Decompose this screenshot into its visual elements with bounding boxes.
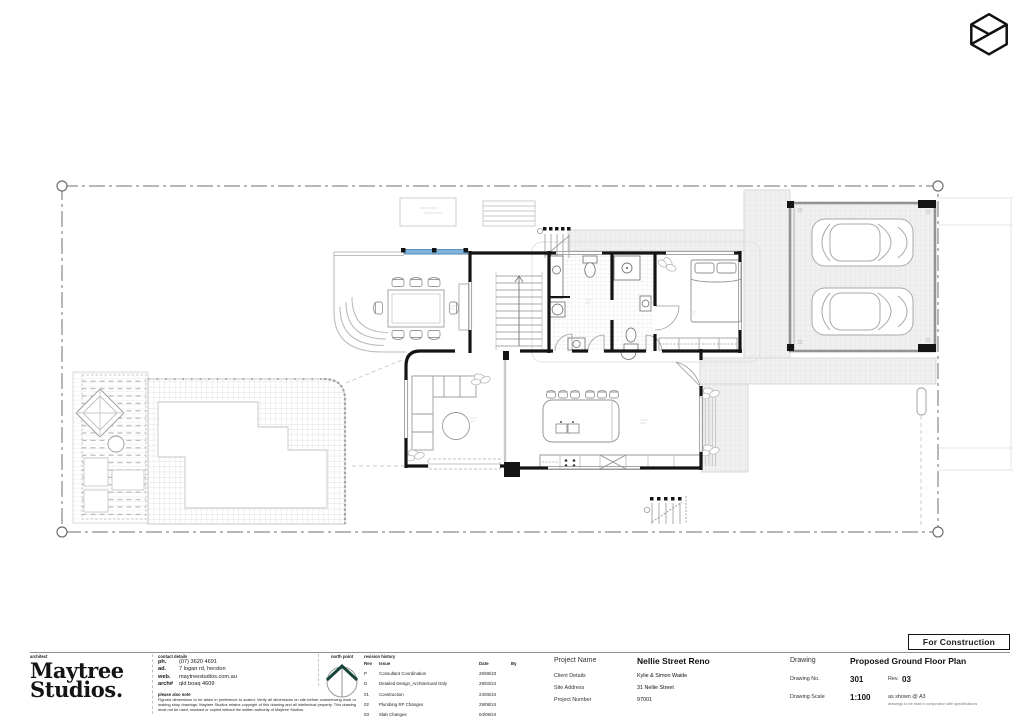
floor-plan bbox=[0, 0, 1024, 725]
drawing-title: Proposed Ground Floor Plan bbox=[850, 656, 966, 666]
bed bbox=[691, 260, 741, 322]
rev-by bbox=[511, 702, 525, 712]
by-header: By bbox=[511, 661, 525, 671]
coffee-table bbox=[443, 413, 470, 440]
wardrobe bbox=[659, 338, 737, 350]
sofa bbox=[412, 376, 476, 450]
car-icon bbox=[812, 219, 913, 266]
hall-basin bbox=[621, 352, 636, 360]
window-seat bbox=[428, 459, 500, 469]
window-seat-deck bbox=[459, 284, 469, 330]
rev-id: 02 bbox=[364, 702, 379, 712]
drawing-no-label: Drawing No. bbox=[790, 676, 820, 682]
drawing-label: Drawing bbox=[790, 657, 816, 664]
project-name: Nellie Street Reno bbox=[637, 656, 710, 666]
scale-fine-print: drawings to be read in conjunction with … bbox=[888, 702, 977, 706]
rev-id: D bbox=[364, 681, 379, 691]
project-name-label: Project Name bbox=[554, 657, 596, 664]
rev-date: 24/05/24 bbox=[479, 692, 511, 702]
rev-label: Rev. bbox=[888, 676, 899, 682]
neighbour-lines bbox=[938, 198, 1013, 470]
island-stools bbox=[547, 390, 619, 398]
rev-by bbox=[511, 681, 525, 691]
scale-note: as shown @ A3 bbox=[888, 694, 926, 700]
project-number-value: 97001 bbox=[637, 697, 652, 703]
rev-header: Rev bbox=[364, 661, 379, 671]
rev-by bbox=[511, 671, 525, 681]
issue-header: Issue bbox=[379, 661, 479, 671]
rev-value: 03 bbox=[902, 675, 911, 684]
tree-icon bbox=[108, 436, 124, 452]
revision-heading: revision history bbox=[364, 654, 525, 659]
car-icon bbox=[812, 288, 913, 335]
louvre-steps bbox=[483, 201, 535, 226]
rev-by bbox=[511, 712, 525, 722]
rev-issue: Slab Changes bbox=[379, 712, 479, 722]
for-construction-stamp: For Construction bbox=[908, 634, 1010, 650]
drawing-scale-label: Drawing Scale bbox=[790, 694, 825, 700]
date-header: Date bbox=[479, 661, 511, 671]
side-gate bbox=[917, 388, 926, 415]
client-value: Kylie & Simon Waide bbox=[637, 673, 687, 679]
rev-date: 04/09/24 bbox=[479, 712, 511, 722]
studio-logo: Maytree Studios. bbox=[30, 662, 124, 699]
rev-date: 29/08/24 bbox=[479, 702, 511, 712]
drawing-no: 301 bbox=[850, 675, 863, 684]
north-point-label: north point bbox=[319, 654, 365, 659]
rev-issue: Detailed Design_Architectural Only bbox=[379, 681, 479, 691]
garden-shed bbox=[400, 198, 456, 226]
timber-deck bbox=[73, 372, 148, 523]
garage bbox=[787, 200, 936, 352]
paved-terrace bbox=[148, 379, 345, 524]
north-point-icon bbox=[323, 661, 361, 699]
north-point: north point bbox=[319, 654, 365, 699]
column-divider bbox=[152, 654, 153, 714]
internal-stair bbox=[496, 272, 542, 350]
pool-glazing bbox=[401, 248, 468, 254]
project-number-label: Project Number bbox=[554, 697, 591, 703]
rev-issue: Construction bbox=[379, 692, 479, 702]
wall-pier bbox=[503, 351, 509, 360]
rev-issue: Consultant Coordination bbox=[379, 671, 479, 681]
rev-id: P bbox=[364, 671, 379, 681]
site-address-value: 31 Nellie Street bbox=[637, 685, 674, 691]
rev-issue: Plumbing RF Changes bbox=[379, 702, 479, 712]
wall-pier bbox=[504, 462, 520, 477]
kitchen-island bbox=[543, 400, 619, 442]
title-block: architect Maytree Studios. contact detai… bbox=[30, 652, 1010, 724]
rev-id: 03 bbox=[364, 712, 379, 722]
client-label: Client Details bbox=[554, 673, 586, 679]
revision-table: Rev Issue Date By P Consultant Coordinat… bbox=[364, 661, 525, 722]
dining-table bbox=[388, 290, 444, 327]
rev-date: 29/08/23 bbox=[479, 671, 511, 681]
rev-id: 01 bbox=[364, 692, 379, 702]
rev-date: 29/03/24 bbox=[479, 681, 511, 691]
drawing-scale: 1:100 bbox=[850, 693, 870, 702]
external-stair-south bbox=[644, 496, 686, 524]
site-address-label: Site Address bbox=[554, 685, 584, 691]
revision-history: revision history Rev Issue Date By P Con… bbox=[364, 654, 525, 722]
rev-by bbox=[511, 692, 525, 702]
title-block-rule bbox=[30, 652, 1010, 653]
